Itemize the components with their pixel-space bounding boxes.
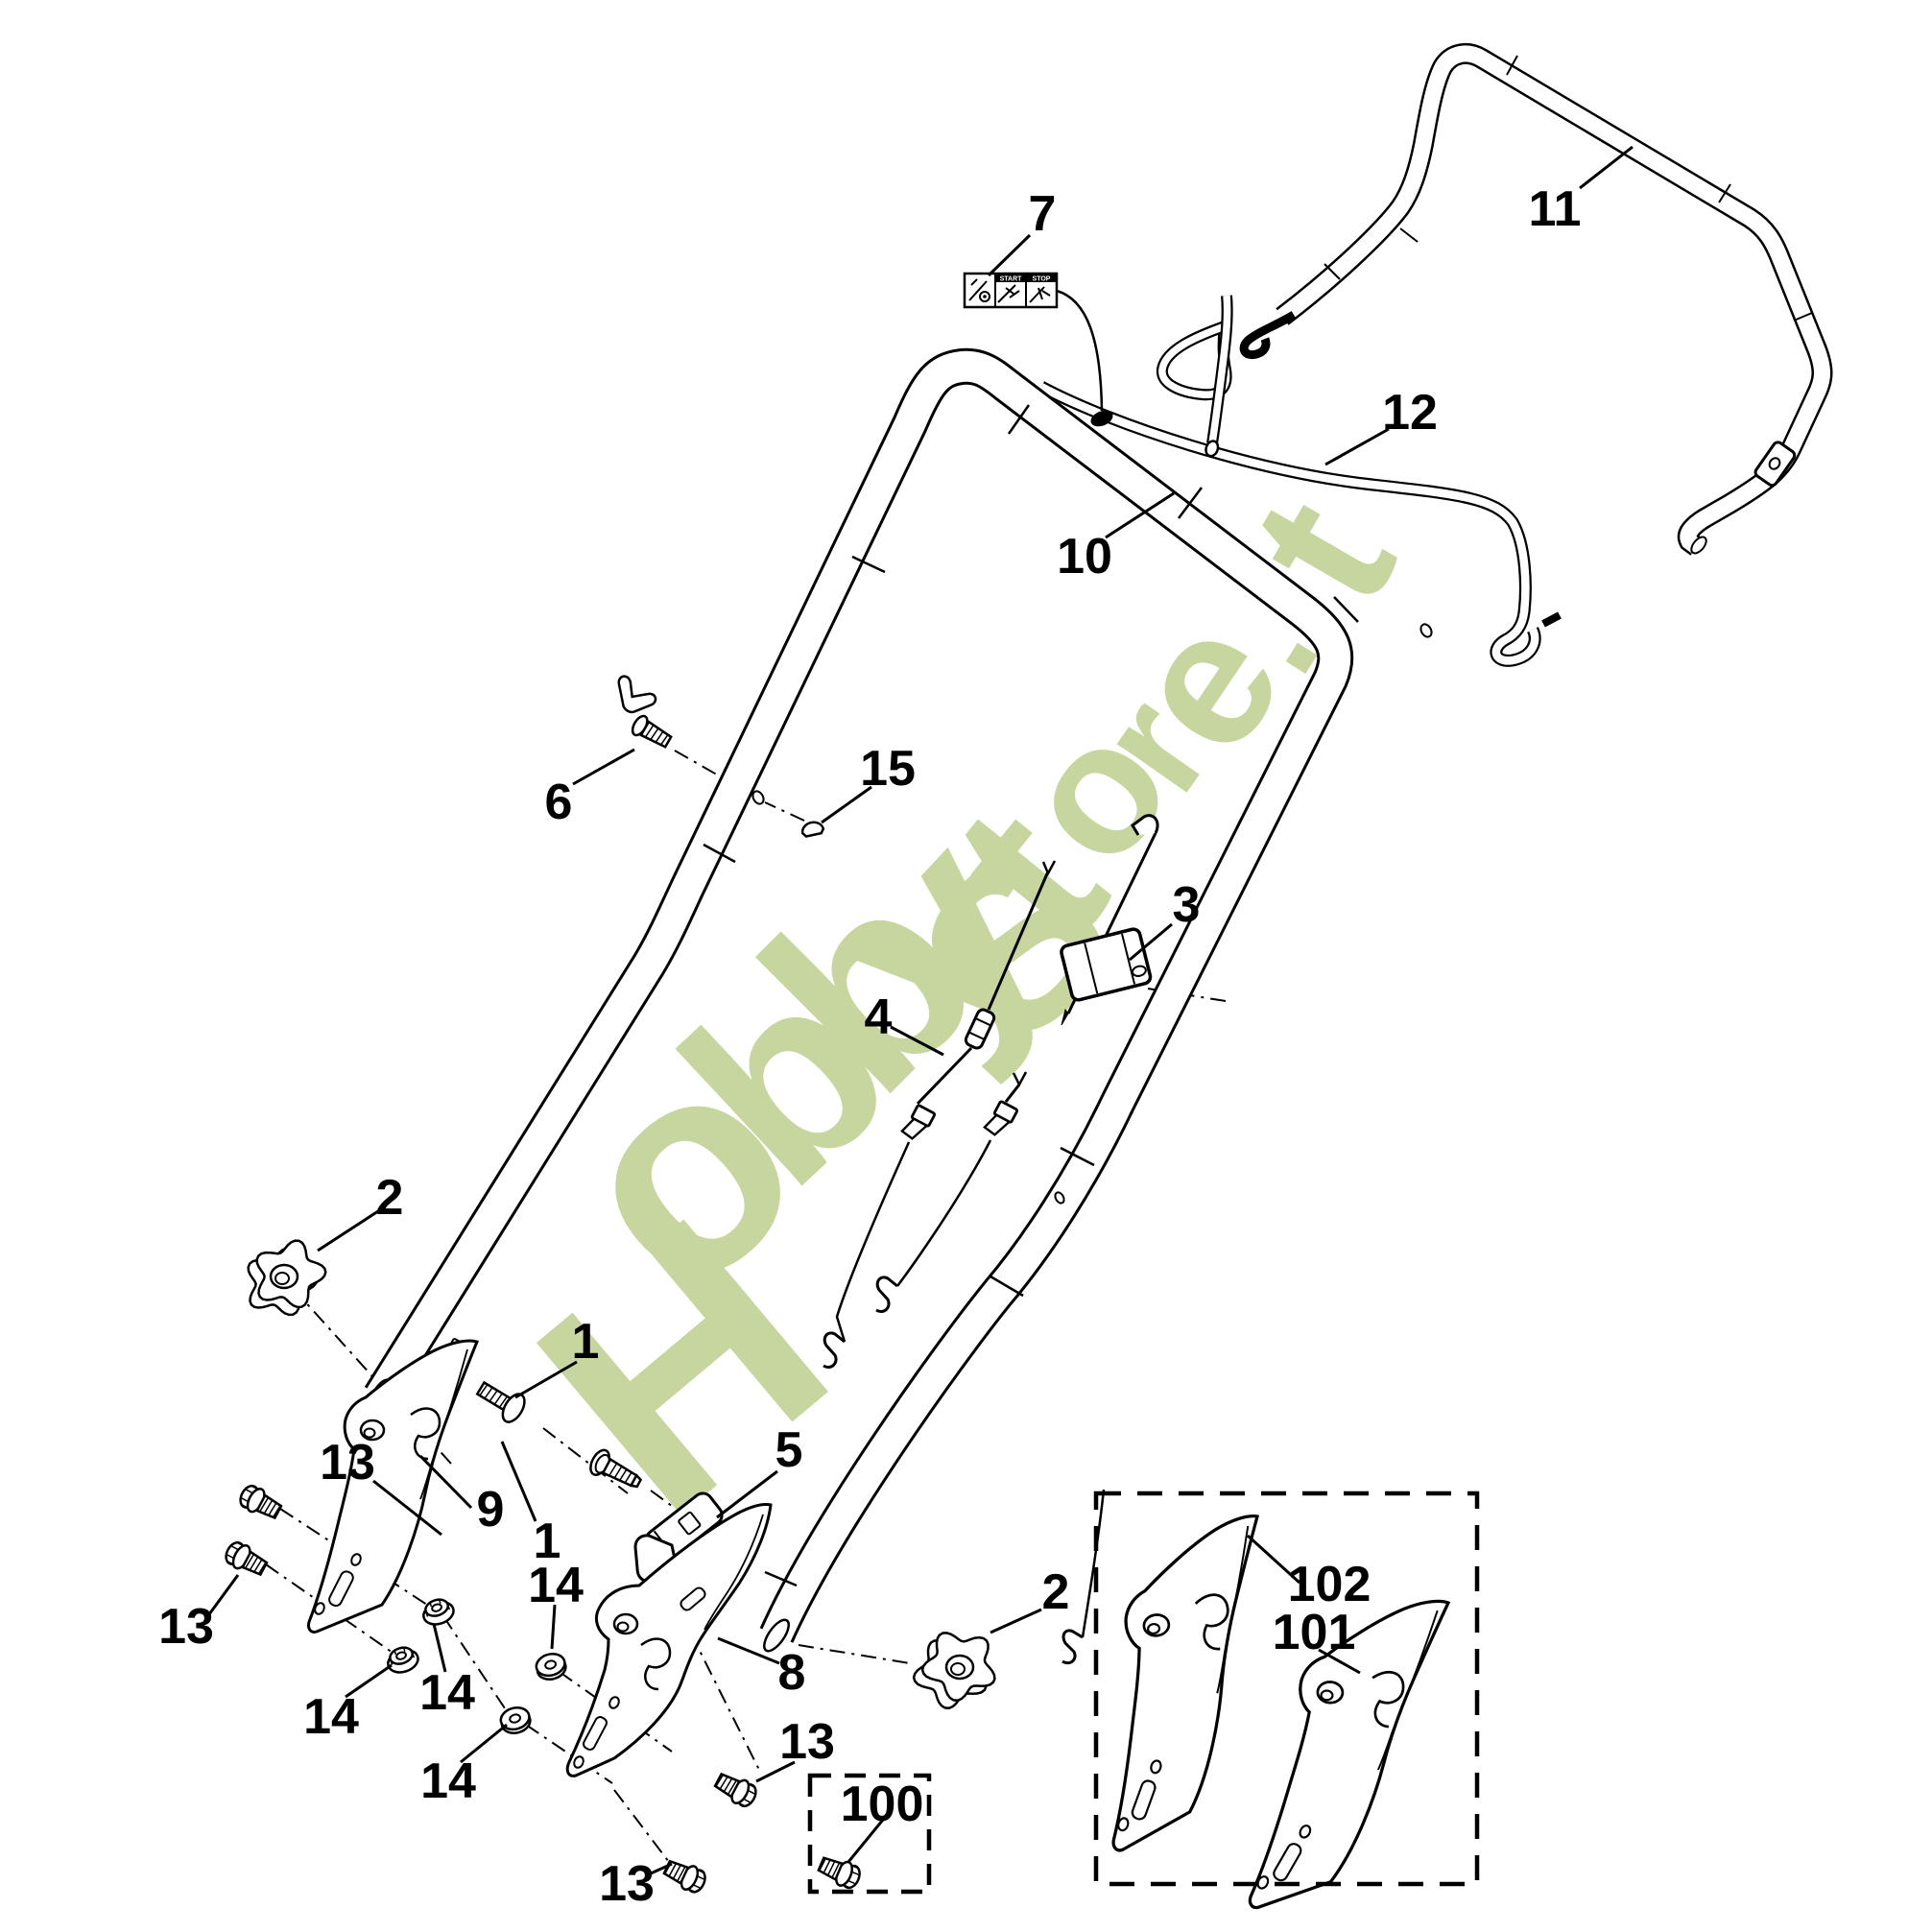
svg-text:101: 101 [1273, 1605, 1356, 1660]
svg-text:11: 11 [1529, 181, 1582, 237]
svg-text:9: 9 [477, 1482, 505, 1538]
svg-text:STOP: STOP [1033, 276, 1051, 283]
svg-text:15: 15 [860, 741, 916, 797]
svg-text:13: 13 [779, 1714, 835, 1770]
svg-text:2: 2 [376, 1170, 404, 1226]
svg-text:START: START [1000, 276, 1023, 283]
svg-text:14: 14 [419, 1665, 475, 1721]
svg-text:14: 14 [420, 1753, 476, 1809]
svg-text:1: 1 [572, 1314, 600, 1370]
svg-text:100: 100 [841, 1777, 924, 1832]
svg-text:13: 13 [158, 1599, 214, 1655]
svg-text:14: 14 [528, 1558, 584, 1613]
svg-text:13: 13 [599, 1856, 655, 1912]
svg-text:13: 13 [320, 1435, 375, 1491]
svg-text:6: 6 [545, 775, 573, 830]
svg-text:4: 4 [865, 990, 893, 1045]
svg-text:10: 10 [1057, 529, 1112, 584]
svg-text:2: 2 [1042, 1564, 1070, 1620]
svg-text:12: 12 [1382, 385, 1438, 441]
svg-text:5: 5 [775, 1422, 803, 1478]
svg-text:8: 8 [778, 1645, 806, 1701]
svg-text:14: 14 [303, 1689, 359, 1745]
svg-text:3: 3 [1173, 877, 1201, 933]
svg-text:7: 7 [1029, 186, 1057, 242]
